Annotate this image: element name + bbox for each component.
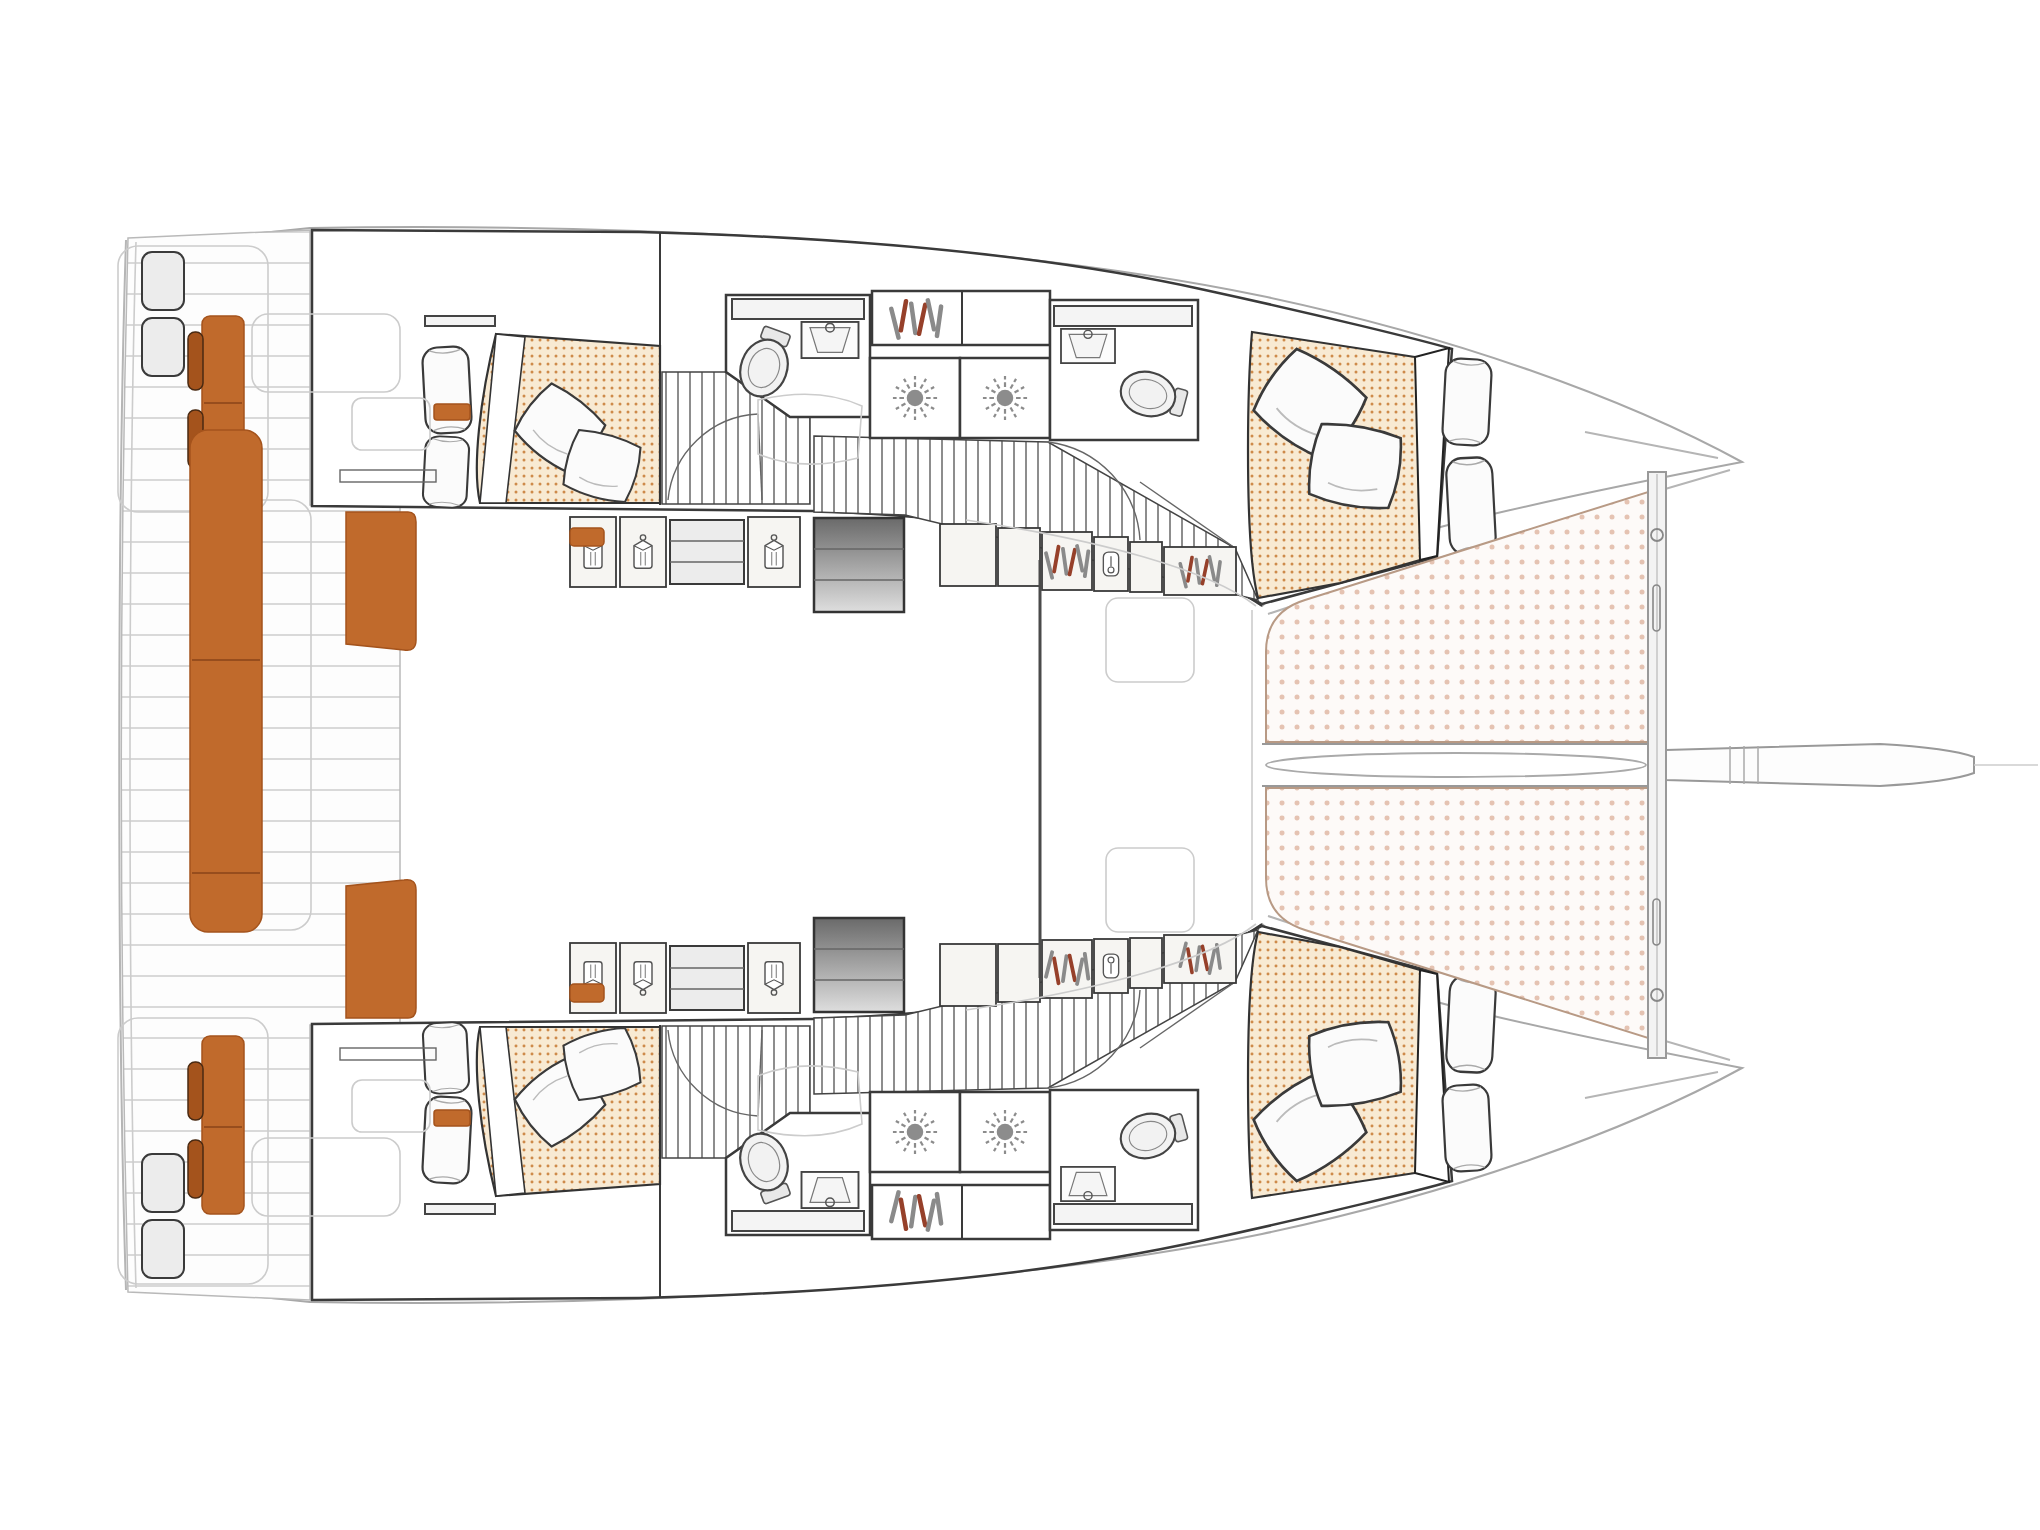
companionway-stairs-bottom xyxy=(814,918,904,1012)
companionway-stairs-top xyxy=(814,518,904,612)
centre-spar-sleeve xyxy=(1266,753,1646,777)
forward-crossbeam xyxy=(1648,472,1666,1058)
trampoline-centre-channel xyxy=(1262,744,1650,786)
cockpit-central-lounge-bench xyxy=(190,430,262,932)
bowsprit xyxy=(1666,744,2038,786)
catamaran-floorplan-diagram xyxy=(0,0,2040,1530)
saloon-window xyxy=(1106,848,1194,932)
catamaran-floorplan-page: Catamaran sailing yacht — interior accom… xyxy=(0,0,2040,1530)
saloon-window xyxy=(1106,598,1194,682)
